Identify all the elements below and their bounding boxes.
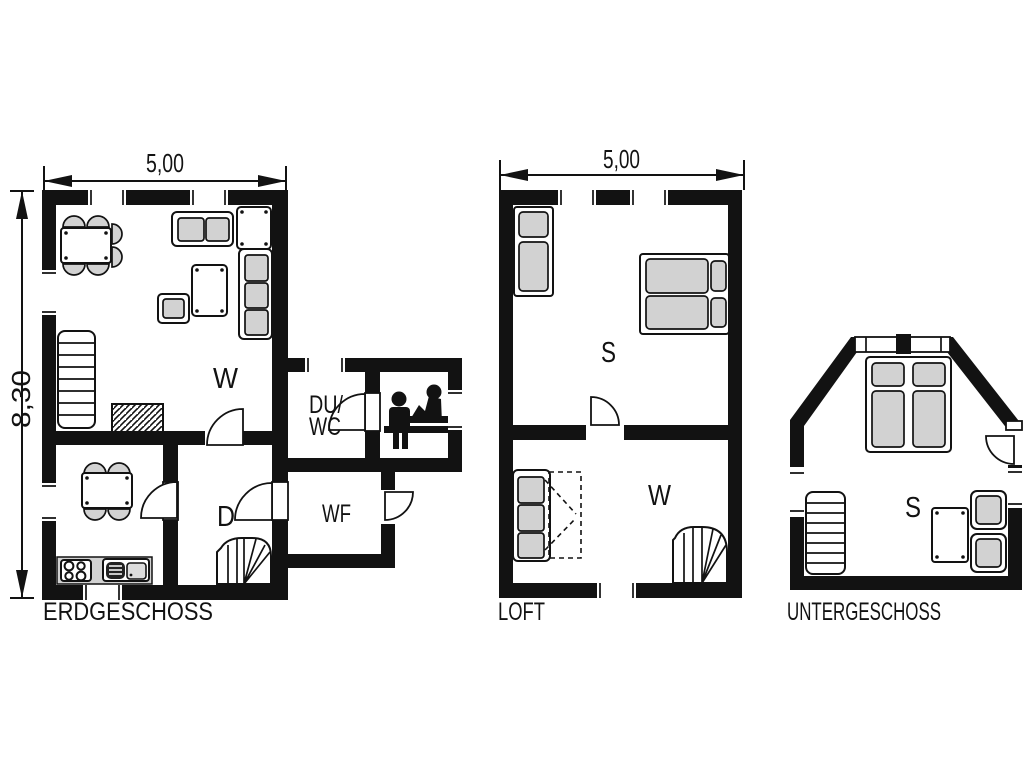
dining-table-group bbox=[61, 216, 122, 275]
dimension-width-loft: 5,00 bbox=[500, 144, 744, 190]
chair-icon bbox=[87, 216, 109, 227]
kitchen-group bbox=[57, 463, 152, 584]
arrowhead-up-icon bbox=[16, 191, 28, 219]
doors-untergeschoss bbox=[986, 421, 1022, 465]
window-mullion-icon bbox=[896, 334, 911, 354]
arrowhead-down-icon bbox=[16, 570, 28, 598]
floorplan-page: 5,00 8,30 bbox=[0, 0, 1024, 768]
room-label-living-loft: W bbox=[648, 480, 672, 512]
plan-erdgeschoss: 5,00 8,30 bbox=[6, 148, 462, 626]
dimension-width-label: 5,00 bbox=[146, 148, 184, 178]
dining-table-icon bbox=[61, 228, 111, 263]
door-bedroom-icon bbox=[591, 397, 619, 425]
chair-icon bbox=[112, 247, 122, 267]
single-bed-icon bbox=[514, 207, 553, 296]
dimension-height: 8,30 bbox=[6, 191, 36, 598]
table-icon bbox=[932, 508, 968, 562]
plan-untergeschoss: S UNTERGESCHOSS bbox=[787, 334, 1022, 626]
room-label-dining: D bbox=[217, 501, 235, 533]
arrowhead-right-icon bbox=[258, 175, 286, 187]
room-label-bedroom: S bbox=[601, 337, 616, 369]
door-basement-icon bbox=[986, 436, 1014, 464]
chair-icon bbox=[87, 264, 109, 275]
sink-basin-icon bbox=[127, 563, 146, 579]
doormat-hatch-icon bbox=[112, 404, 163, 432]
table-group bbox=[932, 491, 1006, 572]
dimension-width-label-loft: 5,00 bbox=[603, 144, 640, 174]
double-bed-icon bbox=[866, 357, 951, 452]
room-label-shower-line2: WC bbox=[309, 413, 341, 441]
plan-title-erdgeschoss: ERDGESCHOSS bbox=[43, 598, 213, 626]
kitchen-table-icon bbox=[82, 473, 132, 508]
arrowhead-left-icon bbox=[500, 169, 528, 181]
windows-loft bbox=[558, 190, 668, 598]
chair-icon bbox=[84, 509, 106, 520]
sauna-icon bbox=[384, 385, 448, 450]
stairs-straight-icon bbox=[806, 492, 845, 574]
chair-icon bbox=[63, 264, 85, 275]
chair-icon bbox=[108, 509, 130, 520]
door-main-entrance-icon bbox=[385, 492, 413, 520]
door-kitchen-icon bbox=[141, 482, 177, 518]
arrowhead-right-icon bbox=[716, 169, 744, 181]
plan-loft: 5,00 bbox=[498, 144, 744, 626]
room-label-living: W bbox=[213, 363, 239, 395]
dimension-height-label: 8,30 bbox=[6, 370, 36, 428]
doors-loft bbox=[586, 397, 624, 440]
dimension-width: 5,00 bbox=[44, 148, 286, 196]
room-label-entry: WF bbox=[322, 500, 351, 528]
stairs-winder-icon bbox=[217, 538, 271, 584]
stairs-winder-icon bbox=[673, 527, 727, 583]
plan-title-untergeschoss: UNTERGESCHOSS bbox=[787, 598, 941, 626]
plan-title-loft: LOFT bbox=[498, 598, 545, 626]
sofa-bed-icon bbox=[513, 470, 581, 561]
arrowhead-left-icon bbox=[44, 175, 72, 187]
double-bed-icon bbox=[640, 254, 729, 334]
stairs-straight-icon bbox=[58, 331, 95, 428]
chair-icon bbox=[63, 216, 85, 227]
room-label-bedroom-ug: S bbox=[905, 492, 921, 524]
chair-icon bbox=[112, 224, 122, 244]
door-living-icon bbox=[207, 409, 243, 445]
floorplan-canvas: 5,00 8,30 bbox=[0, 0, 1024, 768]
coffee-table-icon bbox=[192, 265, 227, 316]
door-entry-hall-icon bbox=[235, 483, 272, 520]
sofa-group bbox=[158, 207, 272, 339]
